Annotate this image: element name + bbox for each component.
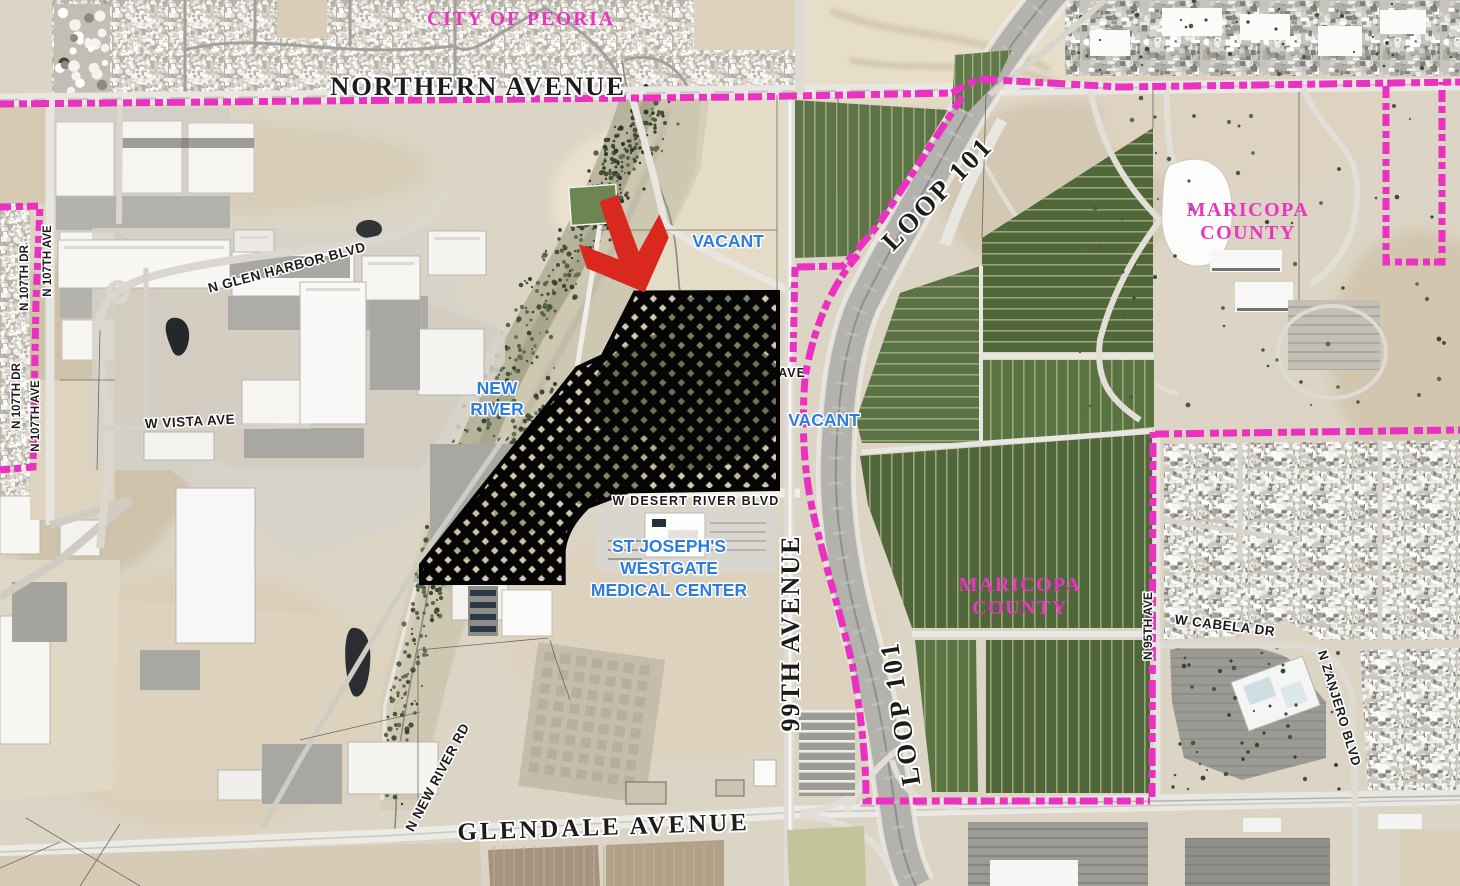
svg-text:N 107TH DR: N 107TH DR xyxy=(11,362,23,429)
svg-text:W DESERT RIVER BLVD: W DESERT RIVER BLVD xyxy=(612,494,779,508)
svg-text:VACANT: VACANT xyxy=(788,410,860,430)
svg-text:NEW: NEW xyxy=(477,378,518,398)
svg-text:ST JOSEPH'S: ST JOSEPH'S xyxy=(612,536,726,556)
svg-text:COUNTY: COUNTY xyxy=(1200,222,1296,244)
svg-text:MARICOPA: MARICOPA xyxy=(959,574,1082,596)
svg-text:N 107TH DR: N 107TH DR xyxy=(19,244,31,311)
svg-text:NORTHERN AVENUE: NORTHERN AVENUE xyxy=(330,71,626,101)
svg-text:99TH AVENUE: 99TH AVENUE xyxy=(776,534,805,731)
svg-text:RIVER: RIVER xyxy=(470,399,524,419)
svg-text:N 107TH AVE: N 107TH AVE xyxy=(30,380,42,452)
svg-text:N 107TH AVE: N 107TH AVE xyxy=(42,225,54,297)
svg-text:MEDICAL CENTER: MEDICAL CENTER xyxy=(591,580,748,600)
svg-text:COUNTY: COUNTY xyxy=(972,597,1068,619)
svg-text:N 95TH AVE: N 95TH AVE xyxy=(1141,592,1155,660)
svg-text:VACANT: VACANT xyxy=(692,231,764,251)
svg-text:WESTGATE: WESTGATE xyxy=(620,558,718,578)
svg-text:CITY OF PEORIA: CITY OF PEORIA xyxy=(427,9,615,30)
svg-text:MARICOPA: MARICOPA xyxy=(1187,199,1310,221)
